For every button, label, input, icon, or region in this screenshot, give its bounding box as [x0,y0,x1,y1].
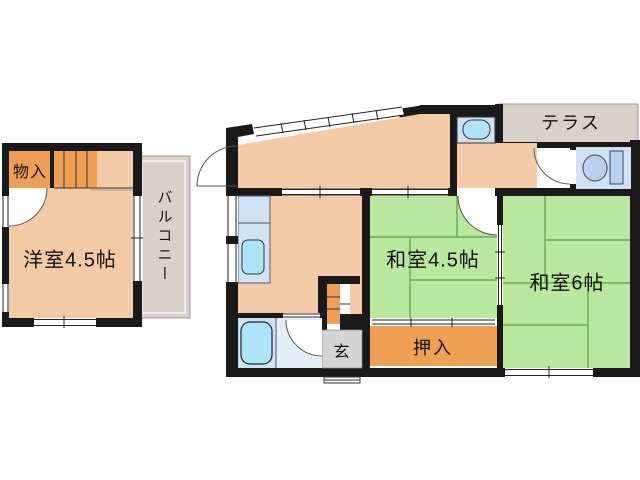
kitchen-counter-icon [238,196,270,283]
room-label-terrace: テラス [541,109,601,135]
floor-plan-drawing [0,0,640,480]
bathtub-icon [238,318,276,368]
room-label-entry: 玄 [333,338,350,362]
toilet-icon [576,147,631,189]
window [226,196,238,282]
entrance-door [324,377,360,383]
washbasin-icon [457,117,495,143]
hall [238,114,450,188]
window [283,313,320,318]
room-label-tatami6: 和室6帖 [529,267,604,296]
corridor [457,143,537,188]
sliding-door-closet [372,317,495,327]
room-label-storage: 物入 [13,158,47,182]
room-label-tatami45: 和室4.5帖 [386,244,480,273]
washroom [276,318,322,368]
floor-plan: 物入 洋室4.5帖 バルコニー テラス 和室4.5帖 和室6帖 押入 玄 [0,0,640,480]
room-label-western: 洋室4.5帖 [23,244,117,273]
stairs-lower-icon [318,276,362,330]
room-label-closet: 押入 [413,334,453,360]
room-label-balcony: バルコニー [154,190,175,285]
